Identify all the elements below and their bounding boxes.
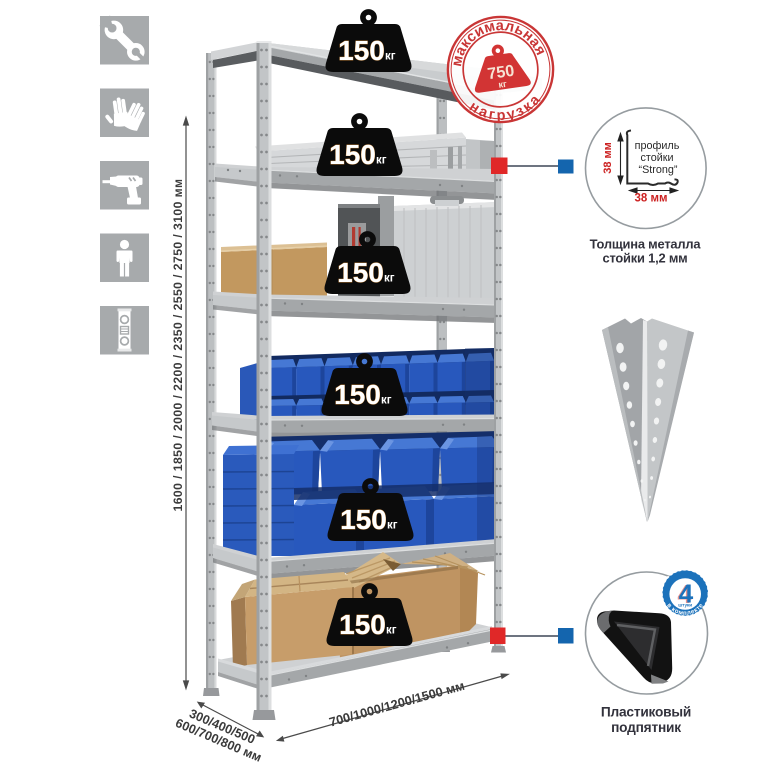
svg-text:Пластиковый: Пластиковый — [601, 705, 691, 720]
svg-text:38 мм: 38 мм — [634, 193, 667, 205]
svg-text:кг: кг — [498, 79, 508, 90]
svg-text:1600 / 1850 / 2000 / 2200 / 23: 1600 / 1850 / 2000 / 2200 / 2350 / 2550 … — [171, 179, 185, 512]
svg-text:“Strong”: “Strong” — [638, 164, 677, 176]
svg-text:стойки 1,2 мм: стойки 1,2 мм — [602, 251, 687, 266]
svg-text:штуки: штуки — [678, 603, 692, 608]
svg-text:профиль: профиль — [635, 140, 680, 152]
svg-text:Толщина металла: Толщина металла — [590, 237, 702, 252]
svg-text:38 мм: 38 мм — [602, 142, 614, 174]
svg-text:стойки: стойки — [640, 152, 673, 164]
svg-text:подпятник: подпятник — [611, 720, 681, 735]
